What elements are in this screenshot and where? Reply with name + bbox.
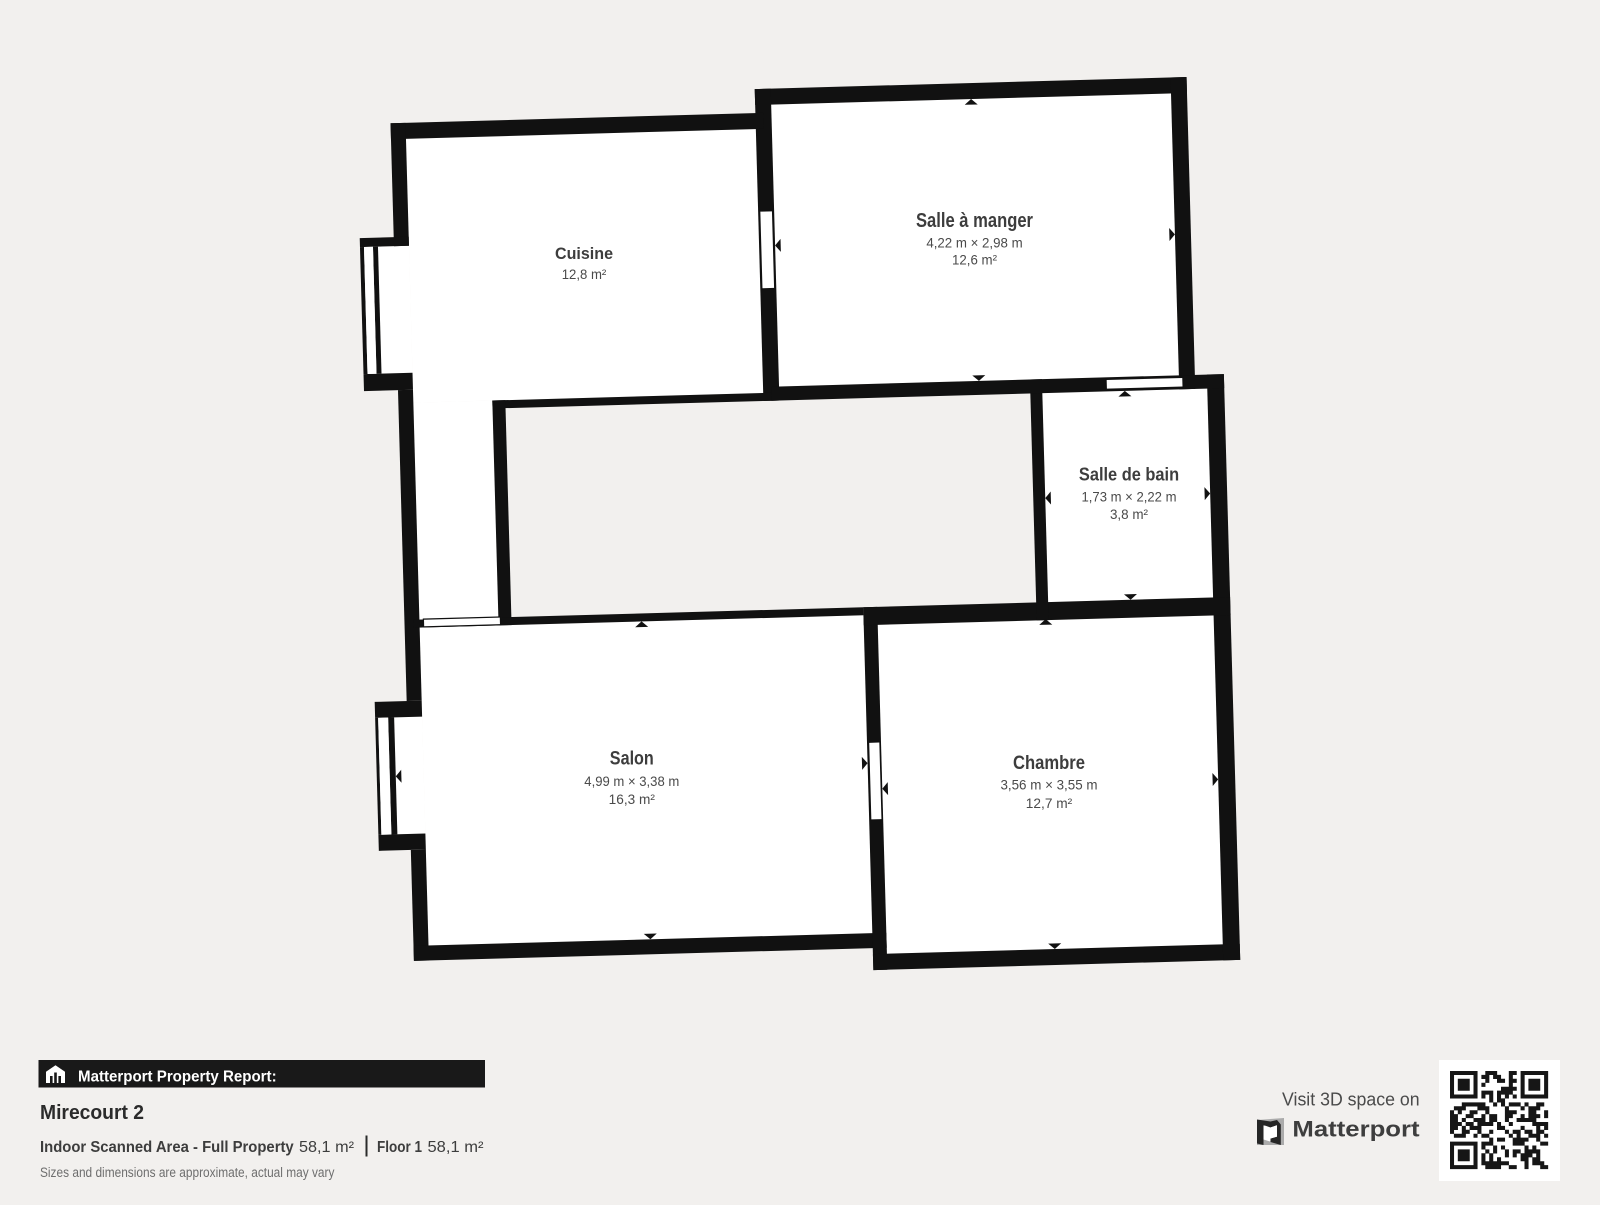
svg-text:Salle à manger: Salle à manger [916, 210, 1033, 232]
svg-text:Salle de bain: Salle de bain [1079, 465, 1179, 485]
svg-text:Mirecourt 2: Mirecourt 2 [40, 1102, 144, 1124]
svg-text:Matterport: Matterport [1292, 1117, 1420, 1142]
svg-text:58,1 m²: 58,1 m² [299, 1139, 354, 1156]
svg-text:4,99 m × 3,38 m: 4,99 m × 3,38 m [584, 774, 679, 789]
svg-text:12,7 m²: 12,7 m² [1026, 796, 1073, 811]
svg-text:Salon: Salon [610, 748, 654, 770]
svg-text:3,8 m²: 3,8 m² [1110, 507, 1149, 522]
svg-text:Chambre: Chambre [1013, 753, 1085, 774]
svg-text:Visit 3D space on: Visit 3D space on [1282, 1090, 1420, 1110]
svg-text:4,22 m × 2,98 m: 4,22 m × 2,98 m [926, 236, 1022, 251]
svg-text:58,1 m²: 58,1 m² [428, 1139, 484, 1156]
svg-text:12,8 m²: 12,8 m² [562, 267, 607, 282]
svg-text:Cuisine: Cuisine [555, 244, 613, 263]
svg-text:3,56 m × 3,55 m: 3,56 m × 3,55 m [1000, 778, 1097, 793]
svg-text:Matterport Property Report:: Matterport Property Report: [78, 1069, 277, 1086]
svg-text:16,3 m²: 16,3 m² [609, 792, 656, 807]
svg-text:12,6 m²: 12,6 m² [952, 253, 997, 268]
svg-text:1,73 m × 2,22 m: 1,73 m × 2,22 m [1082, 490, 1177, 505]
svg-text:Floor 1: Floor 1 [377, 1139, 422, 1156]
svg-text:Sizes and dimensions are appro: Sizes and dimensions are approximate, ac… [40, 1165, 335, 1180]
svg-text:Indoor Scanned Area - Full Pro: Indoor Scanned Area - Full Property [40, 1139, 294, 1156]
